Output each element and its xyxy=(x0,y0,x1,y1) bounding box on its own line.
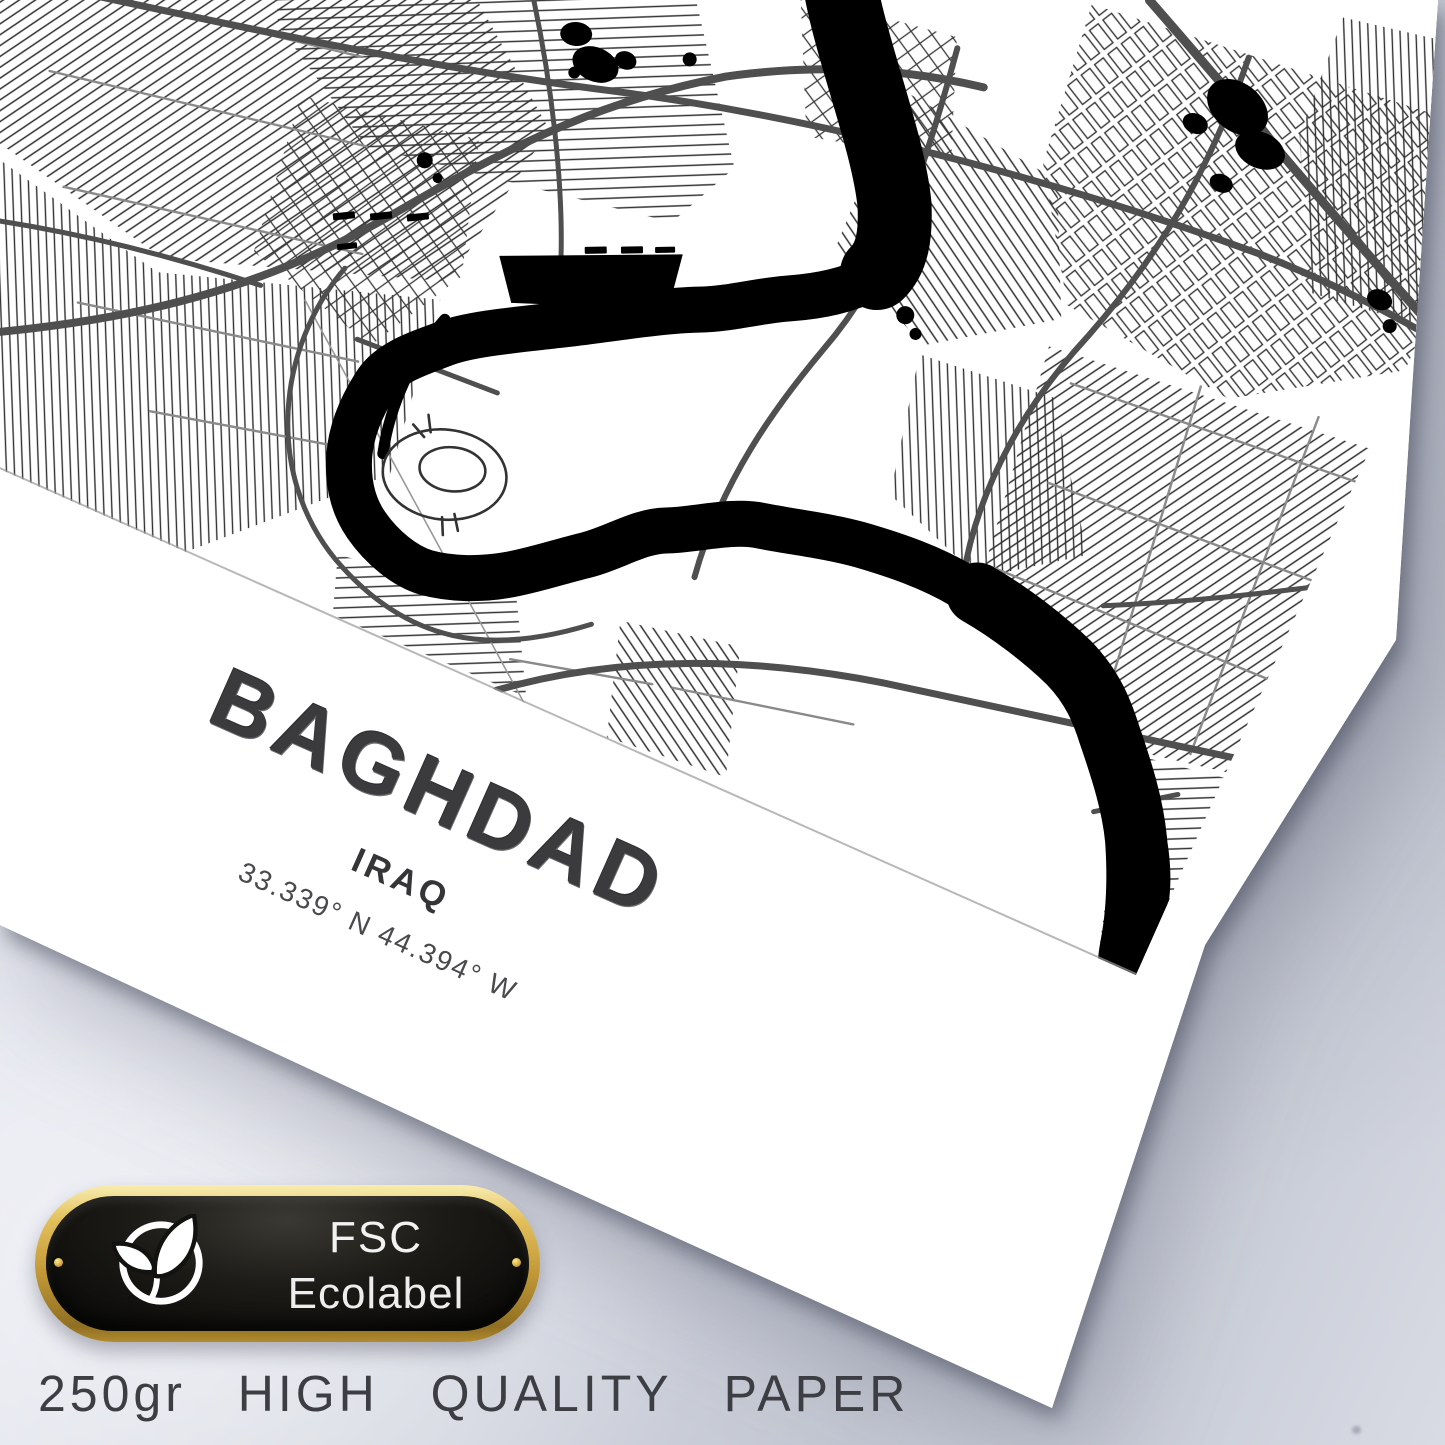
gold-rivet-left xyxy=(54,1258,63,1267)
eco-leaf-icon xyxy=(112,1214,210,1312)
badge-line1: FSC xyxy=(236,1213,516,1263)
product-photo-stage: BAGHDAD IRAQ 33.339° N 44.394° W FSC Eco… xyxy=(0,0,1445,1445)
fsc-ecolabel-badge: FSC Ecolabel xyxy=(35,1185,540,1342)
paper-quality-caption: 250gr HIGH QUALITY PAPER xyxy=(38,1364,909,1423)
badge-line2: Ecolabel xyxy=(236,1269,516,1319)
badge-plate: FSC Ecolabel xyxy=(46,1196,529,1331)
